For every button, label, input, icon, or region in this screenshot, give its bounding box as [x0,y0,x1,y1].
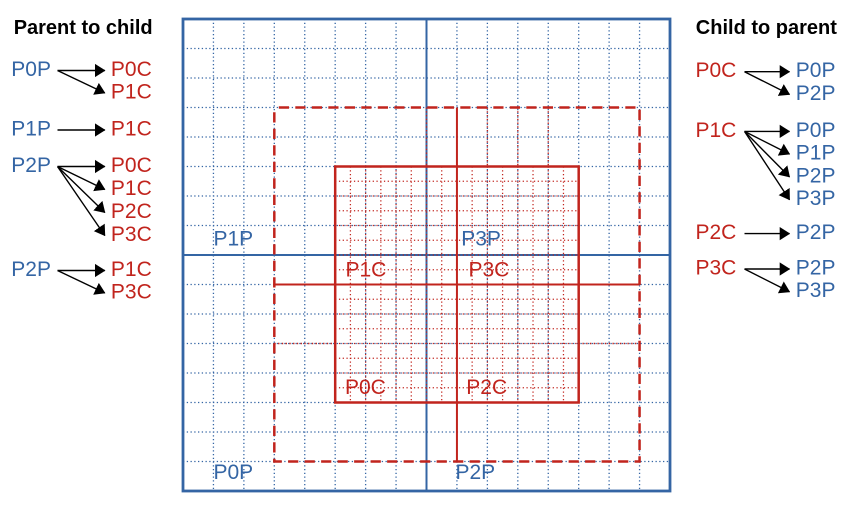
svg-text:P3P: P3P [796,187,836,210]
svg-text:P1C: P1C [111,117,152,140]
svg-text:P3C: P3C [696,256,737,279]
svg-text:P0C: P0C [696,59,737,82]
svg-text:Child to parent: Child to parent [696,17,837,39]
svg-text:P1P: P1P [796,142,836,165]
svg-text:P0P: P0P [796,119,836,142]
svg-text:P3C: P3C [111,280,152,303]
svg-text:P1P: P1P [214,227,254,250]
svg-text:P2C: P2C [696,221,737,244]
svg-text:P2P: P2P [796,82,836,105]
svg-text:P2P: P2P [456,461,496,484]
svg-text:P0C: P0C [111,58,152,81]
svg-text:P0C: P0C [345,376,386,399]
svg-text:P2C: P2C [466,376,507,399]
svg-text:P3P: P3P [461,227,501,250]
svg-text:P2P: P2P [796,164,836,187]
svg-text:P0C: P0C [111,154,152,177]
svg-text:P1C: P1C [111,177,152,200]
svg-text:P2P: P2P [796,221,836,244]
svg-text:P0P: P0P [796,59,836,82]
svg-text:Parent to child: Parent to child [14,17,153,39]
svg-text:P1C: P1C [111,81,152,104]
svg-text:P1C: P1C [696,119,737,142]
svg-text:P2P: P2P [796,256,836,279]
svg-text:P1C: P1C [111,258,152,281]
svg-text:P3C: P3C [469,258,510,281]
svg-text:P1C: P1C [346,258,387,281]
svg-text:P0P: P0P [11,58,51,81]
svg-text:P3P: P3P [796,279,836,302]
svg-text:P3C: P3C [111,223,152,246]
svg-text:P2C: P2C [111,200,152,223]
svg-text:P2P: P2P [11,258,51,281]
svg-text:P1P: P1P [11,117,51,140]
svg-text:P2P: P2P [11,154,51,177]
svg-text:P0P: P0P [214,461,254,484]
